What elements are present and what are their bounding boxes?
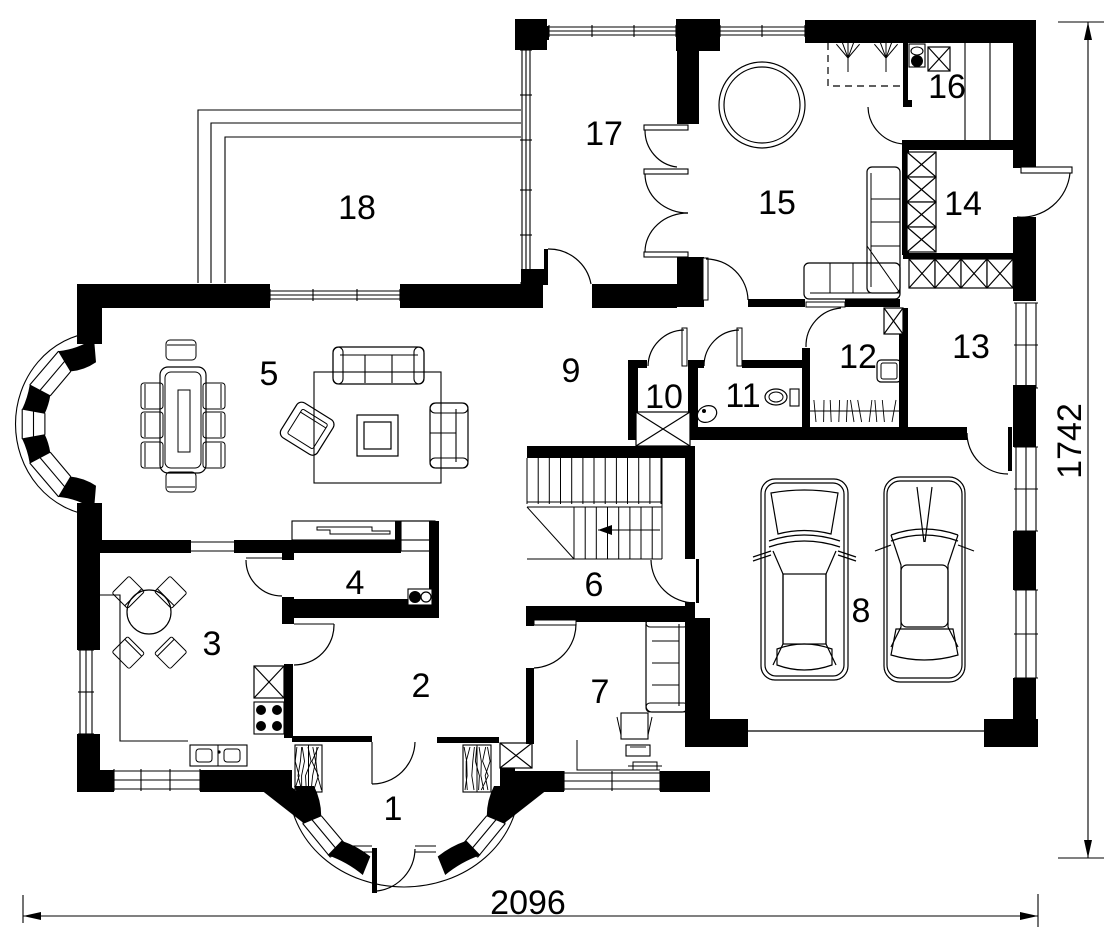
svg-text:11: 11: [725, 377, 760, 415]
svg-text:4: 4: [346, 564, 365, 602]
svg-text:3: 3: [203, 625, 222, 663]
svg-text:5: 5: [260, 355, 279, 393]
svg-text:6: 6: [585, 566, 604, 604]
svg-text:7: 7: [591, 673, 610, 711]
svg-text:2096: 2096: [490, 884, 566, 922]
svg-text:18: 18: [338, 189, 376, 227]
svg-text:17: 17: [585, 115, 623, 153]
svg-text:13: 13: [952, 328, 990, 366]
svg-text:12: 12: [839, 338, 877, 376]
svg-text:9: 9: [562, 352, 581, 390]
svg-text:16: 16: [928, 68, 966, 106]
svg-text:8: 8: [852, 592, 871, 630]
svg-text:2: 2: [412, 667, 431, 705]
svg-text:14: 14: [944, 185, 982, 223]
svg-text:1: 1: [384, 790, 403, 828]
svg-text:1742: 1742: [1051, 403, 1089, 479]
svg-text:15: 15: [758, 184, 796, 222]
svg-text:10: 10: [645, 378, 683, 416]
